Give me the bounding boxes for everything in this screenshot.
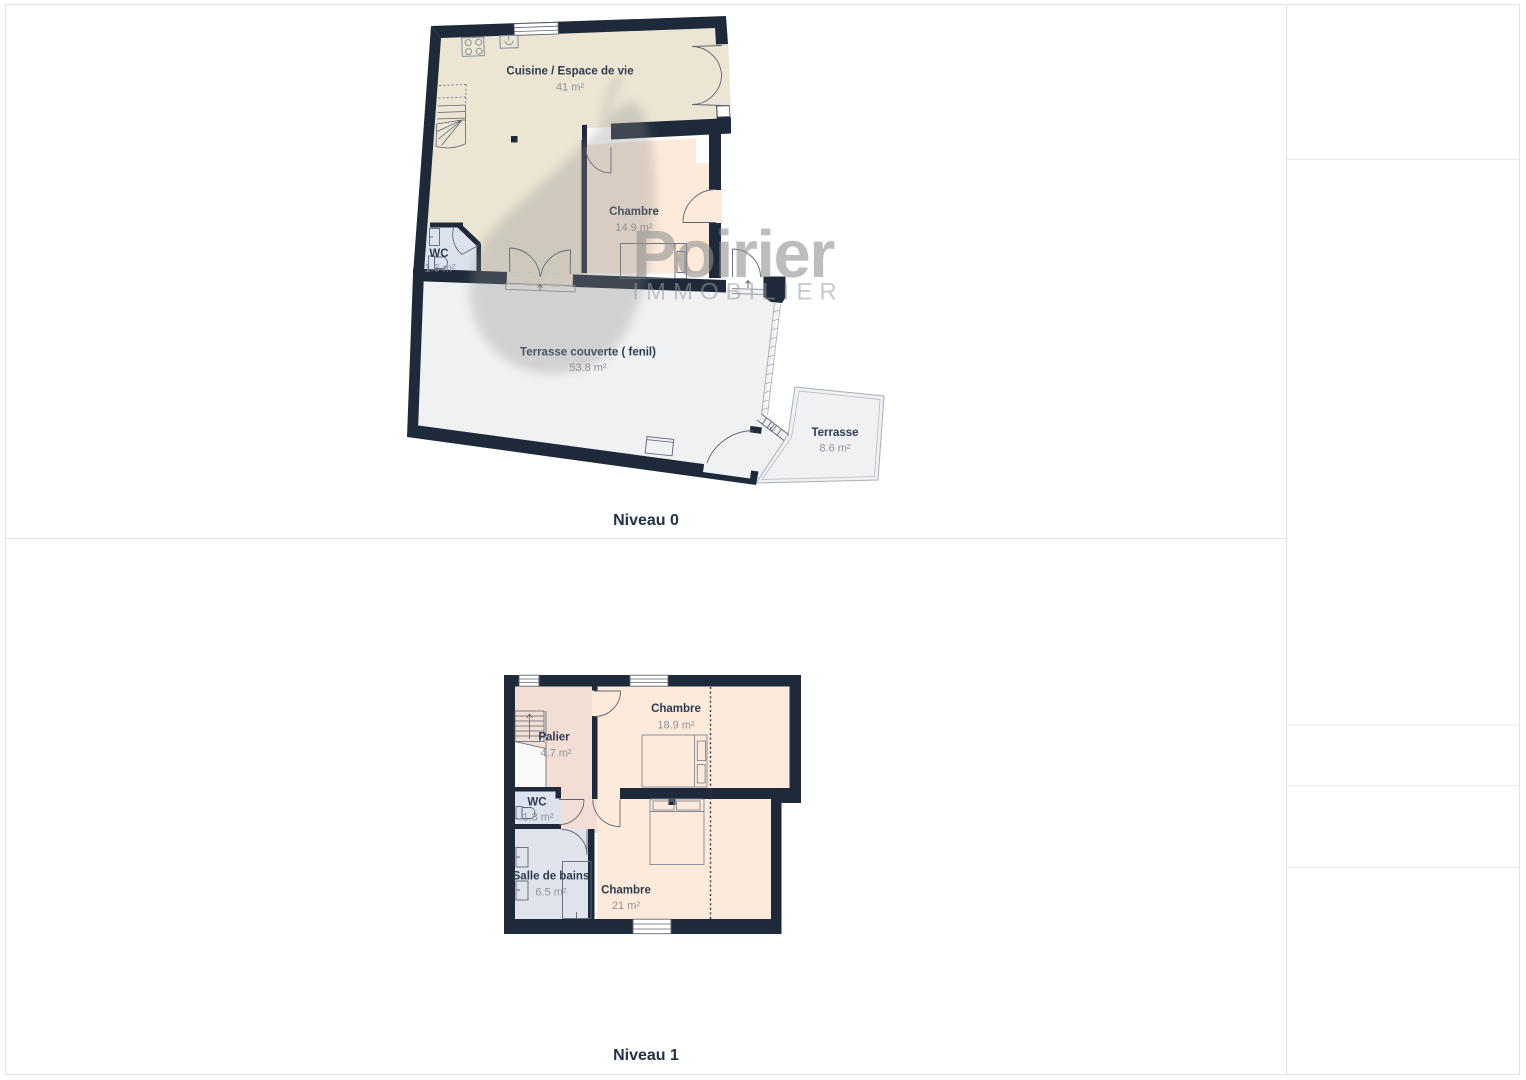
svg-text:Terrasse: Terrasse [811,427,858,439]
svg-text:Niveau 1: Niveau 1 [613,1047,679,1064]
svg-text:8.6 m²: 8.6 m² [819,443,851,455]
svg-text:Palier: Palier [538,732,570,744]
svg-text:Chambre: Chambre [651,703,701,715]
svg-text:Cuisine / Espace de vie: Cuisine / Espace de vie [506,66,633,78]
svg-text:6.5 m²: 6.5 m² [535,887,567,899]
svg-text:1.3 m²: 1.3 m² [522,812,554,824]
svg-text:21 m²: 21 m² [612,900,640,912]
svg-text:Chambre: Chambre [601,885,651,897]
svg-text:WC: WC [429,248,448,260]
svg-text:4.7 m²: 4.7 m² [540,748,572,760]
svg-text:Salle de bains: Salle de bains [513,871,590,883]
svg-text:1.6 m²: 1.6 m² [424,263,456,275]
svg-text:WC: WC [527,797,546,809]
svg-text:Niveau 0: Niveau 0 [613,512,679,529]
svg-text:IMMOBILIER: IMMOBILIER [632,279,843,306]
svg-text:18.9 m²: 18.9 m² [657,720,695,732]
svg-text:41 m²: 41 m² [556,82,584,94]
